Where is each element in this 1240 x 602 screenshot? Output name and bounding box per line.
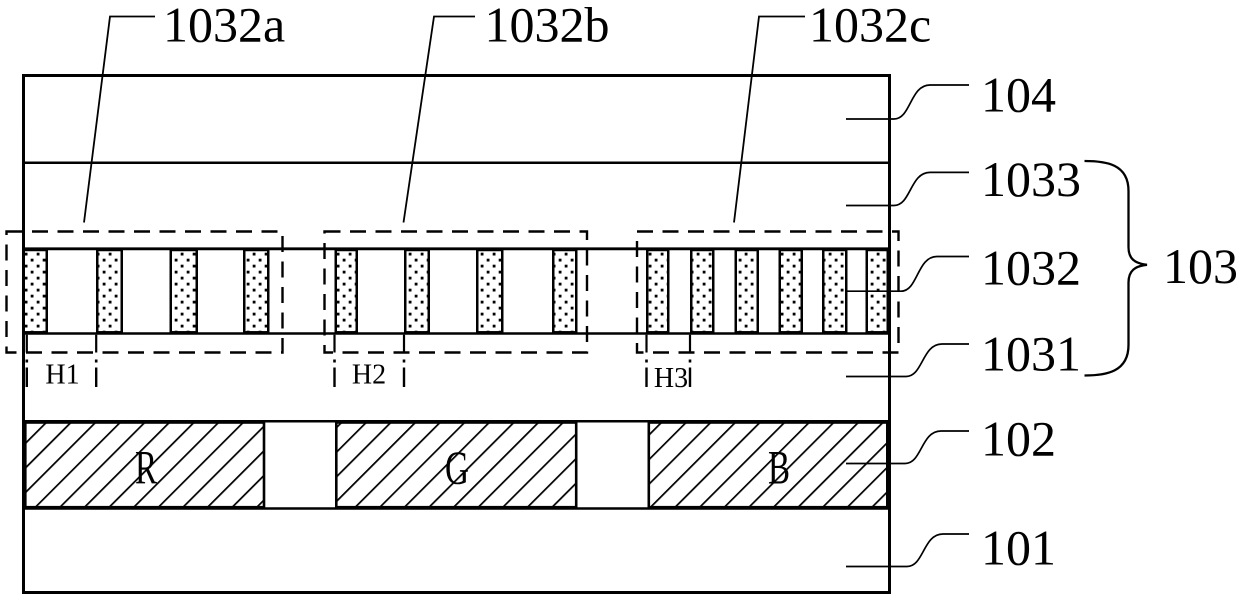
svg-text:101: 101 <box>981 520 1056 576</box>
svg-text:H3: H3 <box>654 363 688 394</box>
svg-text:G: G <box>445 442 469 495</box>
svg-text:H2: H2 <box>352 360 386 391</box>
svg-text:H1: H1 <box>45 360 79 391</box>
svg-text:1033: 1033 <box>981 151 1081 207</box>
svg-text:102: 102 <box>981 411 1056 467</box>
svg-text:1031: 1031 <box>981 326 1081 382</box>
svg-text:1032: 1032 <box>981 240 1081 296</box>
svg-text:R: R <box>135 442 157 495</box>
svg-text:104: 104 <box>981 67 1056 123</box>
svg-text:1032b: 1032b <box>485 0 610 53</box>
svg-text:1032c: 1032c <box>809 0 931 53</box>
svg-text:103: 103 <box>1163 238 1238 294</box>
svg-text:1032a: 1032a <box>163 0 285 53</box>
svg-text:B: B <box>768 442 790 495</box>
